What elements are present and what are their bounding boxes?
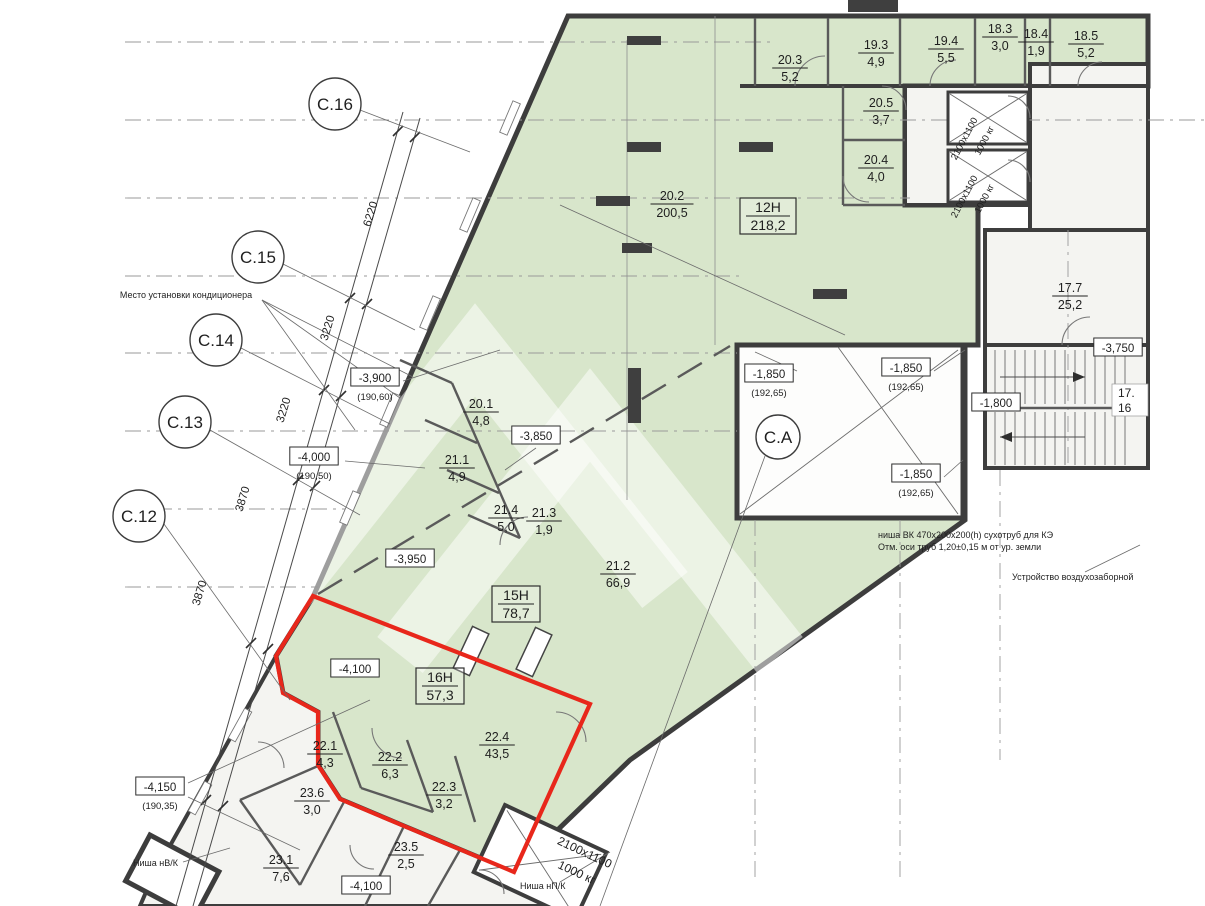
room-area: 5,5 [937,51,954,65]
room-number: 17.7 [1058,281,1082,295]
room-number: 20.3 [778,53,802,67]
note-text: Ниша нП/К [520,881,566,891]
axis-bubble-label: С.16 [317,95,353,114]
unit-label: 12Н218,2 [740,198,796,234]
room-number: 23.1 [269,853,293,867]
dimension-value: 6220 [362,200,381,228]
elevation-value: -1,850 [753,369,786,381]
elevation-sub: (192,65) [898,488,933,499]
axis-bubble: С.16 [309,78,361,130]
room-area: 3,7 [872,113,889,127]
axis-bubble-label: С.15 [240,248,276,267]
axis-bubble-label: С.А [764,428,793,447]
elevation-value: -1,800 [980,398,1013,410]
room-number: 19.3 [864,38,888,52]
room-area: 1,9 [1027,44,1044,58]
note-text: ниша ВК 470х200х200(h) сухотруб для КЭ [878,530,1054,540]
room-area: 1,9 [535,523,552,537]
elevation-mark: -4,100 [331,659,379,677]
room-number: 21.1 [445,453,469,467]
unit-label: 16Н57,3 [416,668,464,704]
elevation-mark: -1,850(192,65) [882,358,930,393]
room-area: 25,2 [1058,298,1082,312]
note-text: Ниша нВ/К [133,858,179,868]
room-number: 18.4 [1024,27,1048,41]
axis-bubble: С.15 [232,231,284,283]
room-number: 22.4 [485,730,509,744]
axis-bubble-label: С.13 [167,413,203,432]
room-number: 22.3 [432,780,456,794]
axis-bubble: С.13 [159,396,211,448]
room-area: 4,9 [448,470,465,484]
room-number: 20.2 [660,189,684,203]
elevation-sub: (192,65) [888,382,923,393]
room-number: 20.4 [864,153,888,167]
room-number: 21.3 [532,506,556,520]
elevation-value: -3,750 [1102,343,1135,355]
axis-bubble: С.12 [113,490,165,542]
elevation-value: -4,000 [298,452,331,464]
room-area: 5,0 [497,520,514,534]
elevation-sub: (190,60) [357,392,392,403]
elevation-sub: (190,50) [296,471,331,482]
room-number: 19.4 [934,34,958,48]
elevation-mark: -1,850(192,65) [745,364,793,399]
room-area: 43,5 [485,747,509,761]
elevation-mark: -4,100 [342,876,390,894]
axis-bubble-label: С.14 [198,331,234,350]
note-text: Устройство воздухозаборной [1012,572,1133,582]
elevation-value: -3,850 [520,431,553,443]
room-number: 20.1 [469,397,493,411]
room-area: 4,8 [472,414,489,428]
room-area: 3,0 [991,39,1008,53]
elevation-value: -3,950 [394,554,427,566]
room-area: 2,5 [397,857,414,871]
room-area: 5,2 [1077,46,1094,60]
room-number: 18.5 [1074,29,1098,43]
room-area: 5,2 [781,70,798,84]
elevation-sub: (190,35) [142,801,177,812]
unit-area: 218,2 [750,217,785,233]
room-area: 3,2 [435,797,452,811]
note-text: Отм. оси труб 1,20±0,15 м от ур. земли [878,542,1041,552]
lobby [1030,64,1148,230]
axis-bubble: С.А [756,415,800,459]
elevation-mark: -3,750 [1094,338,1142,356]
room-area: 4,0 [867,170,884,184]
elevation-mark: -3,850 [512,426,560,444]
room-number: 21.2 [606,559,630,573]
unit-area: 57,3 [426,687,453,703]
unit-number: 16Н [427,669,453,685]
elevation-value: -3,900 [359,373,392,385]
room-number: 22.2 [378,750,402,764]
elevation-value: -4,150 [144,782,177,794]
room-area: 66,9 [606,576,630,590]
note-text: Место установки кондиционера [120,290,252,300]
elevation-mark: -1,800 [972,393,1020,411]
floor-plan-drawing: 17. 16 [0,0,1205,906]
elevation-value: -4,100 [350,881,383,893]
dimension-value: 3220 [319,314,338,342]
stair-label-lower: 16 [1118,401,1132,415]
room-number: 20.5 [869,96,893,110]
unit-area: 78,7 [502,605,529,621]
room-number: 23.6 [300,786,324,800]
elevation-mark: -3,900(190,60) [351,368,399,403]
room-area: 200,5 [656,206,687,220]
elevation-value: -1,850 [890,363,923,375]
elevation-mark: -1,850(192,65) [892,464,940,499]
room-number: 23.5 [394,840,418,854]
elevation-mark: -4,000(190,50) [290,447,338,482]
room-area: 4,9 [867,55,884,69]
room-area: 3,0 [303,803,320,817]
unit-number: 15Н [503,587,529,603]
stair-label-upper: 17. [1118,386,1135,400]
room-number: 22.1 [313,739,337,753]
room-area: 4,3 [316,756,333,770]
elevation-value: -1,850 [900,469,933,481]
room-area: 7,6 [272,870,289,884]
axis-bubble: С.14 [190,314,242,366]
dimension-value: 3220 [275,396,294,424]
room-number: 21.4 [494,503,518,517]
elevation-sub: (192,65) [751,388,786,399]
elevation-mark: -4,150(190,35) [136,777,184,812]
unit-label: 15Н78,7 [492,586,540,622]
elevation-value: -4,100 [339,664,372,676]
unit-number: 12Н [755,199,781,215]
axis-bubble-label: С.12 [121,507,157,526]
dimension-value: 3870 [191,579,210,607]
room-area: 6,3 [381,767,398,781]
elevation-mark: -3,950 [386,549,434,567]
floor-plan-page: 17. 16 [0,0,1205,906]
room-number: 18.3 [988,22,1012,36]
